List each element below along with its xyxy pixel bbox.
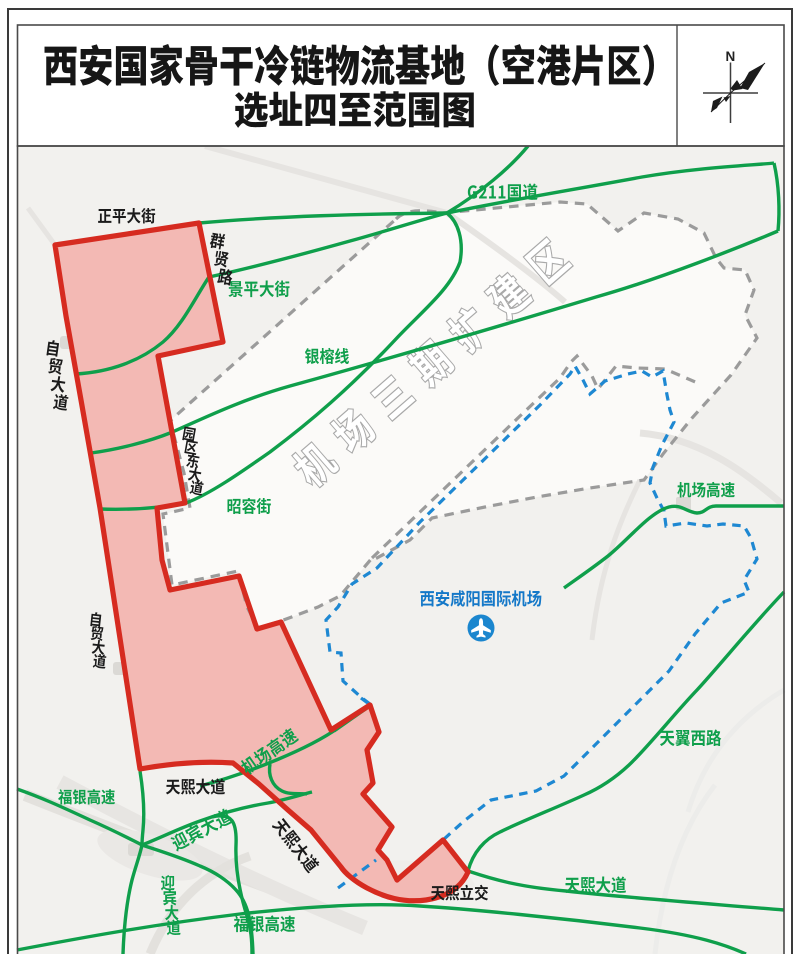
svg-text:N: N (726, 49, 736, 64)
